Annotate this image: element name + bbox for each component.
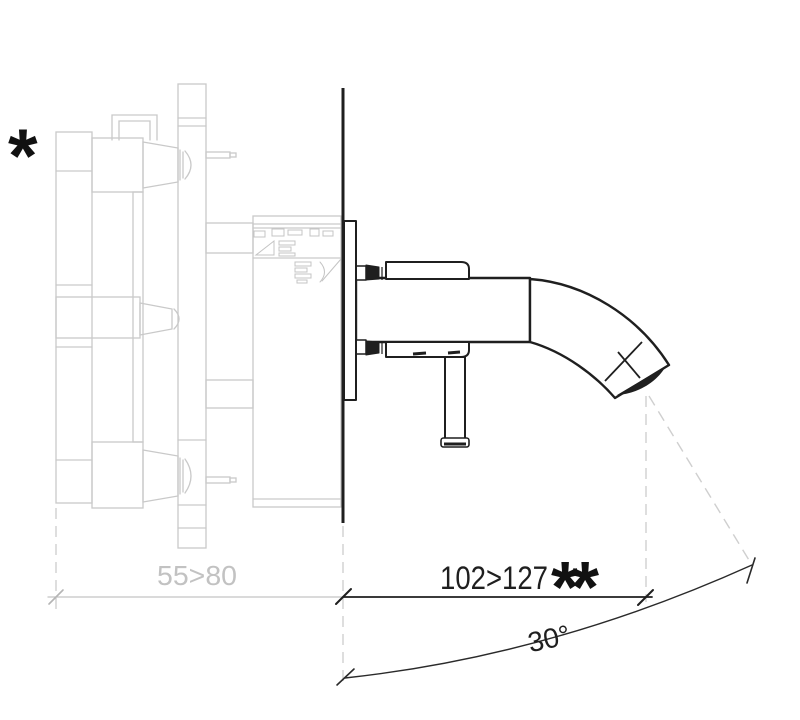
dimension-label-behind-wall: 55>80: [157, 560, 237, 591]
valve-housing: [253, 216, 341, 507]
angle-arc: [345, 565, 752, 678]
angle-arc-tick-right: [747, 558, 755, 583]
valve-left-column: [56, 132, 92, 503]
spout-nut-lower-wedge: [366, 341, 379, 355]
spout-collar-upper: [386, 262, 469, 279]
collar-joint-mark-right: [448, 352, 460, 353]
technical-drawing-page: * 55>80 102>127 ** 30°: [0, 0, 800, 720]
valve-connector-top: [206, 223, 253, 253]
lever-handle-stem: [445, 357, 465, 442]
concealed-valve-assembly: [56, 84, 341, 548]
spout-nut-upper-wedge: [366, 265, 379, 280]
spout-collar-lower: [386, 342, 469, 357]
visible-spout: [344, 221, 669, 447]
valve-mounting-plate: [178, 84, 206, 548]
valve-housing-details: [254, 229, 341, 283]
valve-bracket: [112, 115, 157, 140]
dimension-label-spout: 102>127: [440, 560, 548, 596]
valve-vertical-pipe: [133, 192, 143, 442]
extension-line-stream-angle: [649, 396, 752, 565]
dimension-note-asterisks: **: [551, 548, 599, 628]
technical-drawing-canvas: * 55>80 102>127 ** 30°: [0, 0, 800, 720]
valve-port-bottom: [92, 442, 191, 508]
collar-joint-mark-left: [413, 353, 426, 354]
spout-body: [356, 278, 530, 342]
labels: * 55>80 102>127 ** 30°: [8, 114, 599, 658]
valve-fixing-screws: [206, 152, 236, 483]
dimension-lines: [48, 558, 755, 685]
valve-port-middle: [56, 297, 179, 338]
valve-port-top: [92, 138, 191, 192]
valve-connector-bottom: [206, 380, 253, 408]
angle-label: 30°: [525, 619, 573, 658]
escutcheon-plate: [344, 221, 356, 400]
footnote-asterisk: *: [8, 114, 38, 199]
extension-lines: [56, 396, 752, 686]
